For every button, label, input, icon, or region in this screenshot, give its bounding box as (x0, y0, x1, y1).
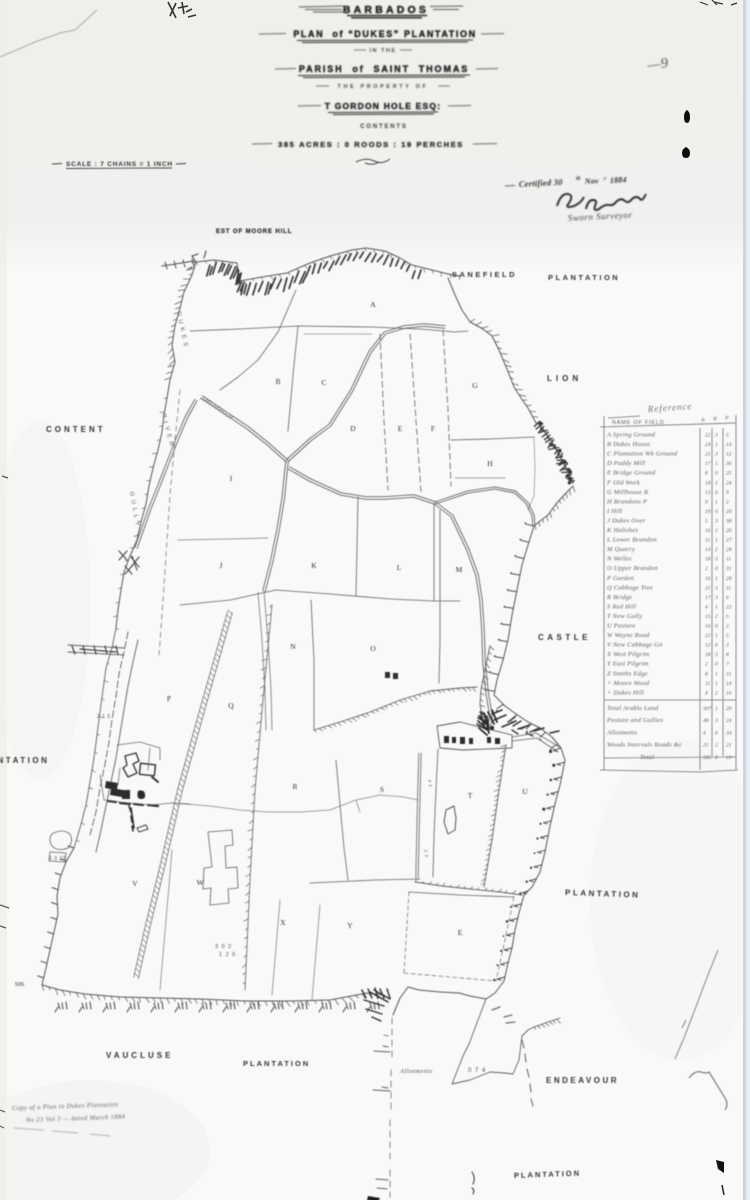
svg-text:9: 9 (726, 490, 729, 496)
svg-text:28: 28 (726, 576, 732, 582)
svg-text:R: R (292, 782, 297, 791)
svg-text:E: E (398, 424, 403, 433)
svg-text:14: 14 (726, 441, 732, 448)
svg-text:J: J (220, 561, 223, 570)
svg-text:C: C (321, 378, 326, 387)
svg-text:22: 22 (726, 604, 732, 610)
svg-text:0: 0 (715, 624, 718, 630)
svg-text:PLANTATION: PLANTATION (548, 273, 620, 282)
svg-text:8: 8 (726, 652, 729, 658)
svg-text:J Dukes Over: J Dukes Over (607, 517, 646, 524)
svg-text:Z Smiths Edge: Z Smiths Edge (607, 670, 648, 677)
svg-text:13: 13 (705, 490, 711, 496)
svg-text:5: 5 (726, 433, 729, 439)
svg-text:PLAN of “DUKES” PLANTATION: PLAN of “DUKES” PLANTATION (293, 29, 476, 39)
svg-text:1: 1 (715, 480, 718, 486)
svg-text:G: G (472, 381, 478, 390)
svg-text:3: 3 (714, 452, 718, 458)
svg-text:Allotments: Allotments (606, 729, 637, 736)
svg-text:N: N (290, 642, 296, 651)
svg-text:16: 16 (705, 624, 711, 630)
svg-text:48: 48 (703, 717, 709, 724)
svg-text:12: 12 (705, 643, 711, 649)
svg-text:THE PROPERTY OF: THE PROPERTY OF (338, 84, 429, 90)
svg-text:22: 22 (705, 433, 711, 439)
svg-text:5: 5 (705, 518, 708, 524)
svg-text:19: 19 (705, 509, 711, 515)
svg-text:31: 31 (725, 566, 732, 572)
svg-text:EST OF MOORE HILL: EST OF MOORE HILL (216, 229, 292, 235)
svg-text:1: 1 (715, 681, 718, 687)
svg-text:31: 31 (725, 671, 732, 677)
svg-text:Pasture and Gullies: Pasture and Gullies (606, 717, 664, 724)
svg-text:1: 1 (715, 671, 718, 677)
svg-text:1: 1 (715, 576, 718, 582)
svg-text:21: 21 (726, 743, 732, 749)
svg-text:2: 2 (726, 624, 729, 630)
svg-text:16: 16 (705, 576, 711, 582)
svg-text:W Wayne Road: W Wayne Road (607, 632, 650, 639)
svg-text:3: 3 (725, 643, 729, 649)
svg-text:L Lower Brandon: L Lower Brandon (606, 537, 657, 544)
svg-text:0: 0 (715, 471, 718, 477)
svg-text:P: P (167, 694, 171, 703)
svg-text:SANEFIELD: SANEFIELD (452, 270, 517, 279)
svg-text:+ Moore Wood: + Moore Wood (607, 680, 650, 687)
svg-text:16: 16 (726, 690, 732, 696)
svg-text:3: 3 (714, 718, 718, 724)
svg-text:O: O (370, 644, 376, 653)
svg-text:VAUCLUSE: VAUCLUSE (106, 1051, 173, 1060)
svg-text:21: 21 (705, 585, 711, 591)
svg-text:25: 25 (726, 471, 732, 477)
svg-text:8: 8 (705, 671, 708, 677)
svg-text:B Dukes House: B Dukes House (607, 441, 650, 448)
svg-text:7: 7 (726, 662, 729, 668)
svg-text:1 2 0: 1 2 0 (219, 952, 236, 958)
svg-text:0: 0 (715, 490, 718, 496)
svg-text:H Brandons P: H Brandons P (606, 498, 647, 505)
svg-text:Allotments: Allotments (399, 1068, 433, 1075)
svg-text:3: 3 (714, 518, 718, 524)
svg-text:0: 0 (715, 730, 718, 736)
svg-text:3 0 2: 3 0 2 (215, 944, 232, 950)
svg-text:L: L (397, 563, 402, 572)
svg-text:2: 2 (715, 614, 718, 620)
svg-text:ENDEAVOUR: ENDEAVOUR (546, 1076, 619, 1085)
svg-text:Woods Intervals Roads &c: Woods Intervals Roads &c (607, 742, 682, 749)
svg-text:Total Arable Land: Total Arable Land (607, 705, 659, 712)
svg-text:BARBADOS: BARBADOS (343, 4, 429, 16)
svg-text:P Garden: P Garden (606, 575, 635, 582)
svg-text:2: 2 (715, 528, 718, 534)
svg-text:E: E (458, 928, 463, 937)
svg-text:11: 11 (705, 538, 710, 544)
svg-text:K Halishes: K Halishes (606, 527, 638, 534)
svg-text:385: 385 (702, 755, 712, 761)
svg-text:X: X (280, 918, 286, 927)
svg-text:U Pasture: U Pasture (607, 623, 635, 630)
svg-text:9: 9 (705, 499, 708, 505)
svg-text:PLANTATION: PLANTATION (243, 1059, 310, 1068)
svg-text:2: 2 (715, 690, 718, 696)
svg-text:O Upper Brandon: O Upper Brandon (607, 565, 658, 572)
svg-text:2 1 5: 2 1 5 (97, 714, 111, 720)
svg-text:3: 3 (714, 652, 718, 658)
svg-text:0: 0 (715, 662, 718, 668)
svg-text:T: T (468, 791, 473, 800)
svg-text:0: 0 (715, 509, 718, 515)
svg-text:2: 2 (726, 499, 729, 505)
svg-text:B: B (275, 377, 280, 386)
svg-text:NAME OF FIELD: NAME OF FIELD (612, 420, 665, 426)
svg-text:0: 0 (715, 643, 718, 649)
svg-text:A: A (370, 300, 376, 309)
svg-text:2: 2 (705, 662, 708, 668)
svg-text:1: 1 (715, 633, 718, 639)
svg-text:CASTLE: CASTLE (538, 633, 591, 642)
svg-text:385 ACRES : 0 ROODS : 19 PERCH: 385 ACRES : 0 ROODS : 19 PERCHES (278, 140, 464, 149)
svg-text:8: 8 (705, 471, 708, 477)
svg-text:V: V (132, 879, 138, 888)
svg-text:4: 4 (705, 689, 708, 696)
svg-text:I Hill: I Hill (606, 508, 622, 515)
svg-text:V New Cabbage Gn: V New Cabbage Gn (607, 642, 663, 649)
svg-text:C Plantation Wk Ground: C Plantation Wk Ground (607, 451, 678, 458)
svg-text:PARISH of SAINT THOMAS: PARISH of SAINT THOMAS (299, 64, 469, 74)
svg-text:F: F (431, 424, 435, 433)
svg-text:0 7 4: 0 7 4 (468, 1068, 486, 1074)
svg-text:2: 2 (715, 743, 718, 749)
svg-text:E Bridge Ground: E Bridge Ground (606, 470, 656, 477)
svg-text:1: 1 (715, 706, 718, 712)
svg-text:16: 16 (705, 528, 711, 534)
svg-text:1884: 1884 (610, 175, 627, 185)
svg-text:17: 17 (705, 461, 711, 467)
svg-text:D: D (350, 424, 356, 433)
svg-text:X West Pilgrim: X West Pilgrim (606, 651, 650, 658)
svg-text:22: 22 (705, 633, 711, 639)
svg-text:24: 24 (705, 441, 711, 448)
svg-text:F Old Work: F Old Work (606, 479, 641, 486)
svg-text:6 3 22: 6 3 22 (49, 856, 66, 862)
svg-text:3: 3 (714, 595, 718, 601)
svg-text:3: 3 (714, 585, 718, 591)
svg-text:5: 5 (726, 633, 729, 639)
svg-text:Nov: Nov (584, 176, 600, 186)
svg-text:5: 5 (726, 614, 729, 620)
svg-text:38: 38 (725, 518, 732, 524)
svg-text:th: th (576, 176, 581, 182)
svg-text:IN THE: IN THE (369, 48, 396, 54)
svg-text:2: 2 (715, 547, 718, 553)
svg-text:H: H (487, 459, 493, 468)
svg-text:SCALE : 7 CHAINS = 1 INCH: SCALE : 7 CHAINS = 1 INCH (66, 161, 173, 168)
svg-text:20: 20 (726, 706, 732, 712)
svg-text:18: 18 (705, 652, 711, 658)
svg-text:4: 4 (705, 603, 708, 610)
svg-text:12: 12 (726, 452, 732, 458)
svg-text:Y: Y (347, 921, 353, 930)
svg-text:PLANTATION: PLANTATION (0, 756, 49, 765)
svg-text:1: 1 (715, 604, 718, 610)
svg-text:Q: Q (228, 701, 234, 710)
svg-text:11: 11 (726, 557, 731, 563)
svg-text:+ Dukes Hill: + Dukes Hill (607, 689, 644, 696)
svg-text:36: 36 (725, 461, 732, 467)
svg-text:1: 1 (715, 499, 718, 505)
svg-text:Q Cabbage Tree: Q Cabbage Tree (607, 584, 653, 591)
svg-text:6: 6 (726, 595, 729, 601)
svg-text:S Red Hill: S Red Hill (607, 603, 636, 610)
svg-text:CONTENTS: CONTENTS (360, 124, 407, 130)
svg-text:14: 14 (726, 680, 732, 687)
svg-text:17: 17 (705, 595, 711, 601)
svg-text:3: 3 (714, 557, 718, 563)
svg-text:2: 2 (705, 566, 708, 572)
svg-text:14: 14 (705, 546, 711, 553)
svg-text:0: 0 (715, 755, 718, 761)
svg-text:18: 18 (705, 557, 711, 563)
svg-text:—9: —9 (645, 55, 669, 74)
svg-text:A Spring Ground: A Spring Ground (606, 432, 656, 439)
svg-text:25: 25 (703, 743, 709, 749)
svg-text:CONTENT: CONTENT (46, 425, 106, 434)
svg-text:24: 24 (726, 717, 732, 724)
svg-text:307: 307 (702, 706, 712, 712)
svg-text:34: 34 (725, 729, 732, 736)
svg-text:S: S (380, 785, 384, 794)
svg-text:596: 596 (15, 982, 24, 988)
svg-text:D Paddy Mill: D Paddy Mill (606, 460, 645, 467)
svg-text:M Quarry: M Quarry (606, 546, 635, 553)
svg-text:26: 26 (726, 528, 732, 534)
svg-text:27: 27 (726, 538, 732, 544)
svg-text:28: 28 (726, 547, 732, 553)
svg-text:K: K (311, 561, 317, 570)
svg-text:LION: LION (547, 374, 582, 383)
svg-text:0: 0 (715, 566, 718, 572)
svg-text:1: 1 (715, 442, 718, 448)
svg-text:N Welles: N Welles (606, 556, 632, 563)
svg-text:4: 4 (703, 729, 706, 736)
svg-text:15: 15 (705, 614, 711, 620)
svg-text:3: 3 (714, 433, 718, 439)
svg-text:11: 11 (705, 681, 710, 687)
svg-text:21: 21 (705, 452, 711, 458)
svg-text:T GORDON HOLE ESQ:: T GORDON HOLE ESQ: (325, 101, 442, 111)
svg-text:1: 1 (715, 538, 718, 544)
svg-text:Y East Pilgrim: Y East Pilgrim (607, 661, 649, 668)
svg-text:24: 24 (726, 479, 732, 486)
svg-text:1: 1 (715, 461, 718, 467)
svg-text:R Bridge: R Bridge (606, 594, 632, 601)
svg-text:11: 11 (726, 585, 731, 591)
svg-text:T New Gully: T New Gully (607, 613, 642, 620)
svg-text:20: 20 (726, 509, 732, 515)
svg-text:19: 19 (726, 755, 732, 761)
svg-text:M: M (456, 565, 463, 574)
svg-text:18: 18 (705, 480, 711, 486)
svg-text:W: W (196, 878, 204, 887)
svg-text:G Millhouse B: G Millhouse B (607, 489, 648, 496)
svg-text:U: U (522, 787, 528, 796)
